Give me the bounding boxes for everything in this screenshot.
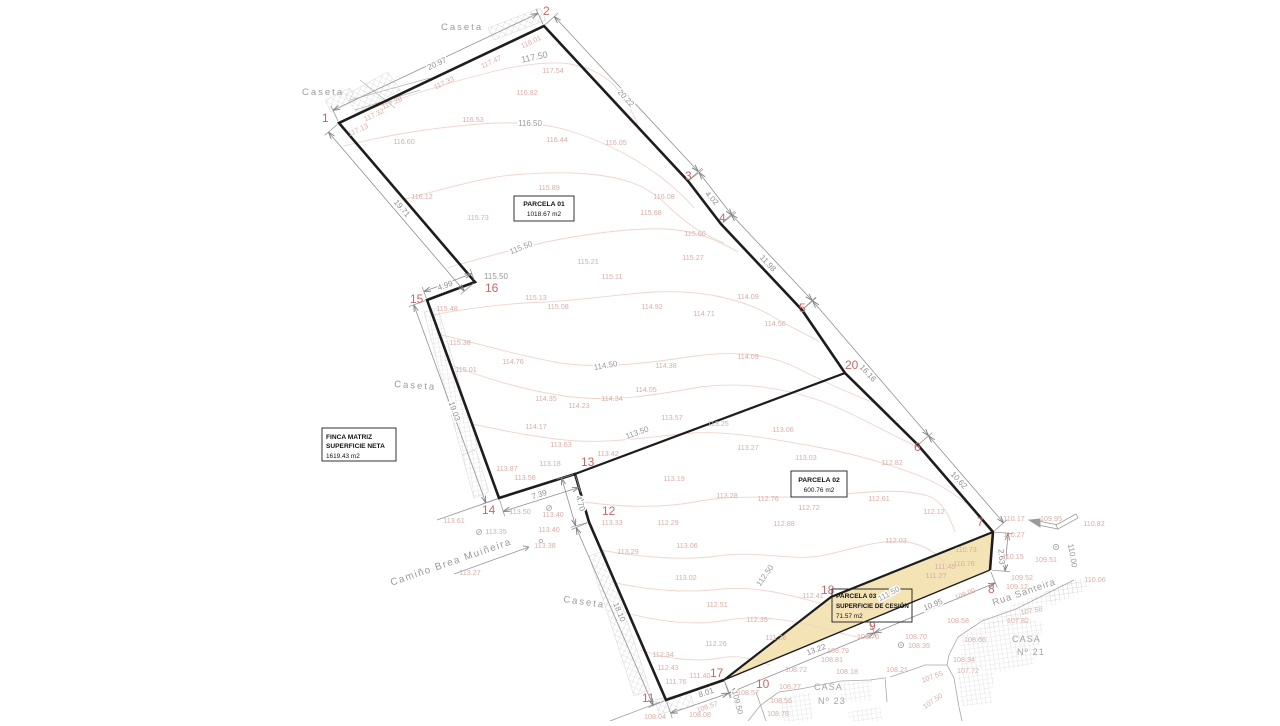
svg-text:115.89: 115.89 (538, 183, 559, 192)
svg-text:110.76: 110.76 (953, 559, 974, 568)
svg-text:2: 2 (543, 4, 550, 18)
svg-text:108.78: 108.78 (767, 709, 789, 718)
svg-text:115.48: 115.48 (436, 304, 457, 313)
svg-text:113.27: 113.27 (459, 568, 480, 577)
svg-text:112.41: 112.41 (802, 591, 823, 600)
svg-text:1619.43 m2: 1619.43 m2 (326, 453, 360, 460)
svg-text:113.27: 113.27 (737, 443, 758, 452)
svg-text:Nº 23: Nº 23 (818, 696, 846, 706)
svg-text:115.01: 115.01 (455, 365, 476, 374)
svg-text:PARCELA 01: PARCELA 01 (523, 201, 565, 208)
svg-text:116.05: 116.05 (605, 138, 626, 147)
svg-text:110.27: 110.27 (1003, 530, 1024, 539)
svg-text:12: 12 (602, 504, 616, 518)
svg-text:CASA: CASA (1012, 634, 1041, 644)
svg-text:113.18: 113.18 (539, 459, 560, 468)
svg-text:112.12: 112.12 (923, 507, 944, 516)
svg-text:114.38: 114.38 (655, 361, 676, 370)
svg-text:7: 7 (977, 515, 984, 529)
svg-text:115.08: 115.08 (547, 302, 568, 311)
svg-text:115.73: 115.73 (467, 213, 488, 222)
svg-text:110.73: 110.73 (955, 545, 976, 554)
svg-text:112.76: 112.76 (757, 494, 778, 503)
svg-text:115.27: 115.27 (682, 253, 703, 262)
svg-text:108.04: 108.04 (644, 712, 666, 721)
svg-text:114.71: 114.71 (693, 309, 714, 318)
svg-text:1: 1 (322, 111, 329, 125)
svg-text:113.19: 113.19 (663, 474, 684, 483)
svg-text:14: 14 (482, 503, 496, 517)
svg-text:109.12: 109.12 (1006, 582, 1028, 591)
svg-text:108.18: 108.18 (836, 667, 858, 676)
svg-text:112.29: 112.29 (657, 518, 678, 527)
svg-text:112.88: 112.88 (773, 519, 794, 528)
svg-text:110.15: 110.15 (1002, 552, 1023, 561)
svg-text:113.28: 113.28 (716, 491, 737, 500)
svg-text:108.81: 108.81 (821, 655, 843, 664)
svg-text:113.06: 113.06 (676, 541, 697, 550)
svg-text:110.17: 110.17 (1003, 514, 1024, 523)
svg-text:115.68: 115.68 (640, 208, 661, 217)
svg-text:108.34: 108.34 (953, 655, 975, 664)
svg-text:115.38: 115.38 (449, 338, 470, 347)
svg-text:113.87: 113.87 (496, 464, 517, 473)
svg-text:110.06: 110.06 (1084, 575, 1105, 584)
svg-text:6: 6 (914, 440, 921, 454)
svg-text:113.40: 113.40 (542, 510, 563, 519)
svg-text:108.70: 108.70 (857, 632, 879, 641)
svg-text:112.43: 112.43 (657, 663, 678, 672)
svg-text:108.66: 108.66 (964, 635, 986, 644)
svg-text:116.08: 116.08 (653, 192, 674, 201)
svg-text:PARCELA 03: PARCELA 03 (836, 593, 877, 600)
svg-text:3: 3 (685, 169, 692, 183)
svg-text:113.42: 113.42 (597, 449, 618, 458)
svg-text:113.02: 113.02 (675, 573, 696, 582)
svg-text:113.58: 113.58 (514, 473, 535, 482)
svg-text:116.50: 116.50 (518, 119, 542, 128)
svg-text:113.03: 113.03 (795, 453, 816, 462)
svg-text:112.35: 112.35 (746, 615, 767, 624)
svg-text:112.72: 112.72 (798, 503, 819, 512)
svg-text:114.34: 114.34 (601, 394, 622, 403)
svg-text:116.44: 116.44 (546, 135, 567, 144)
svg-text:117.54: 117.54 (542, 66, 563, 75)
svg-text:116.12: 116.12 (411, 192, 432, 201)
svg-text:600.76 m2: 600.76 m2 (804, 487, 835, 494)
svg-text:114.05: 114.05 (635, 385, 656, 394)
svg-text:113.29: 113.29 (617, 547, 638, 556)
svg-text:15: 15 (410, 292, 424, 306)
svg-text:114.56: 114.56 (764, 319, 785, 328)
svg-text:116.82: 116.82 (516, 88, 537, 97)
svg-text:Caseta: Caseta (441, 22, 483, 33)
svg-text:113.57: 113.57 (661, 413, 682, 422)
svg-text:PARCELA 02: PARCELA 02 (798, 477, 840, 484)
svg-text:108.35: 108.35 (908, 641, 930, 650)
svg-text:Nº 21: Nº 21 (1017, 647, 1045, 657)
svg-text:107.72: 107.72 (957, 666, 979, 675)
svg-text:CASA: CASA (814, 682, 843, 692)
svg-text:114.09: 114.09 (737, 292, 758, 301)
svg-text:FINCA MATRIZ: FINCA MATRIZ (326, 434, 372, 441)
svg-text:111.76: 111.76 (666, 677, 687, 686)
svg-text:108.56: 108.56 (770, 696, 792, 705)
svg-text:114.35: 114.35 (535, 394, 556, 403)
svg-text:113.25: 113.25 (707, 419, 728, 428)
svg-text:Caseta: Caseta (302, 87, 344, 98)
svg-text:108.58: 108.58 (947, 616, 969, 625)
svg-text:113.38: 113.38 (534, 541, 555, 550)
svg-text:113.63: 113.63 (550, 440, 571, 449)
svg-text:5: 5 (799, 301, 806, 315)
svg-text:111.45: 111.45 (935, 562, 956, 571)
svg-text:SUPERFICIE NETA: SUPERFICIE NETA (326, 443, 385, 450)
svg-text:1018.67 m2: 1018.67 m2 (527, 211, 562, 218)
svg-text:108.21: 108.21 (886, 665, 908, 674)
svg-text:115.13: 115.13 (525, 293, 546, 302)
svg-text:109.51: 109.51 (1035, 555, 1057, 564)
svg-text:9: 9 (869, 619, 876, 633)
svg-text:114.09: 114.09 (737, 352, 758, 361)
svg-text:112.61: 112.61 (868, 494, 889, 503)
svg-text:110.82: 110.82 (1083, 519, 1104, 528)
svg-text:114.17: 114.17 (525, 422, 546, 431)
svg-text:SUPERFICIE DE CESIÓN: SUPERFICIE DE CESIÓN (836, 602, 909, 610)
svg-text:109.95: 109.95 (1040, 514, 1062, 523)
svg-text:112.03: 112.03 (885, 536, 906, 545)
svg-text:108.08: 108.08 (689, 710, 711, 719)
svg-text:111.40: 111.40 (690, 671, 711, 680)
svg-text:111.36: 111.36 (766, 633, 787, 642)
svg-text:107.82: 107.82 (1007, 616, 1029, 625)
svg-text:4: 4 (719, 211, 726, 225)
svg-text:112.51: 112.51 (706, 600, 727, 609)
svg-text:114.76: 114.76 (502, 357, 523, 366)
svg-text:113.35: 113.35 (485, 527, 506, 536)
svg-text:112.34: 112.34 (652, 650, 673, 659)
svg-text:17: 17 (710, 666, 724, 680)
svg-text:108.77: 108.77 (779, 682, 801, 691)
svg-text:108.57: 108.57 (737, 688, 759, 697)
svg-text:116.60: 116.60 (393, 137, 414, 146)
svg-text:115.60: 115.60 (684, 229, 705, 238)
svg-text:115.21: 115.21 (577, 257, 598, 266)
svg-text:112.26: 112.26 (705, 639, 726, 648)
svg-text:13: 13 (581, 455, 595, 469)
svg-text:114.23: 114.23 (568, 401, 589, 410)
svg-text:108.70: 108.70 (905, 632, 927, 641)
svg-text:113.33: 113.33 (601, 518, 622, 527)
svg-text:116.53: 116.53 (462, 115, 483, 124)
svg-text:8: 8 (988, 582, 995, 596)
svg-text:113.61: 113.61 (443, 516, 464, 525)
svg-text:16: 16 (485, 281, 499, 295)
svg-text:20: 20 (845, 358, 859, 372)
svg-text:114.92: 114.92 (641, 302, 662, 311)
svg-text:113.50: 113.50 (509, 507, 530, 516)
svg-text:115.11: 115.11 (602, 272, 623, 281)
svg-text:111.27: 111.27 (926, 571, 947, 580)
svg-text:11: 11 (642, 691, 655, 705)
svg-text:112.82: 112.82 (881, 458, 902, 467)
svg-text:108.79: 108.79 (827, 646, 849, 655)
svg-text:113.40: 113.40 (538, 525, 559, 534)
svg-text:113.06: 113.06 (772, 425, 793, 434)
svg-text:108.72: 108.72 (785, 665, 807, 674)
svg-text:115.50: 115.50 (484, 272, 508, 281)
svg-text:109.52: 109.52 (1011, 573, 1033, 582)
svg-text:71.57 m2: 71.57 m2 (836, 613, 863, 620)
